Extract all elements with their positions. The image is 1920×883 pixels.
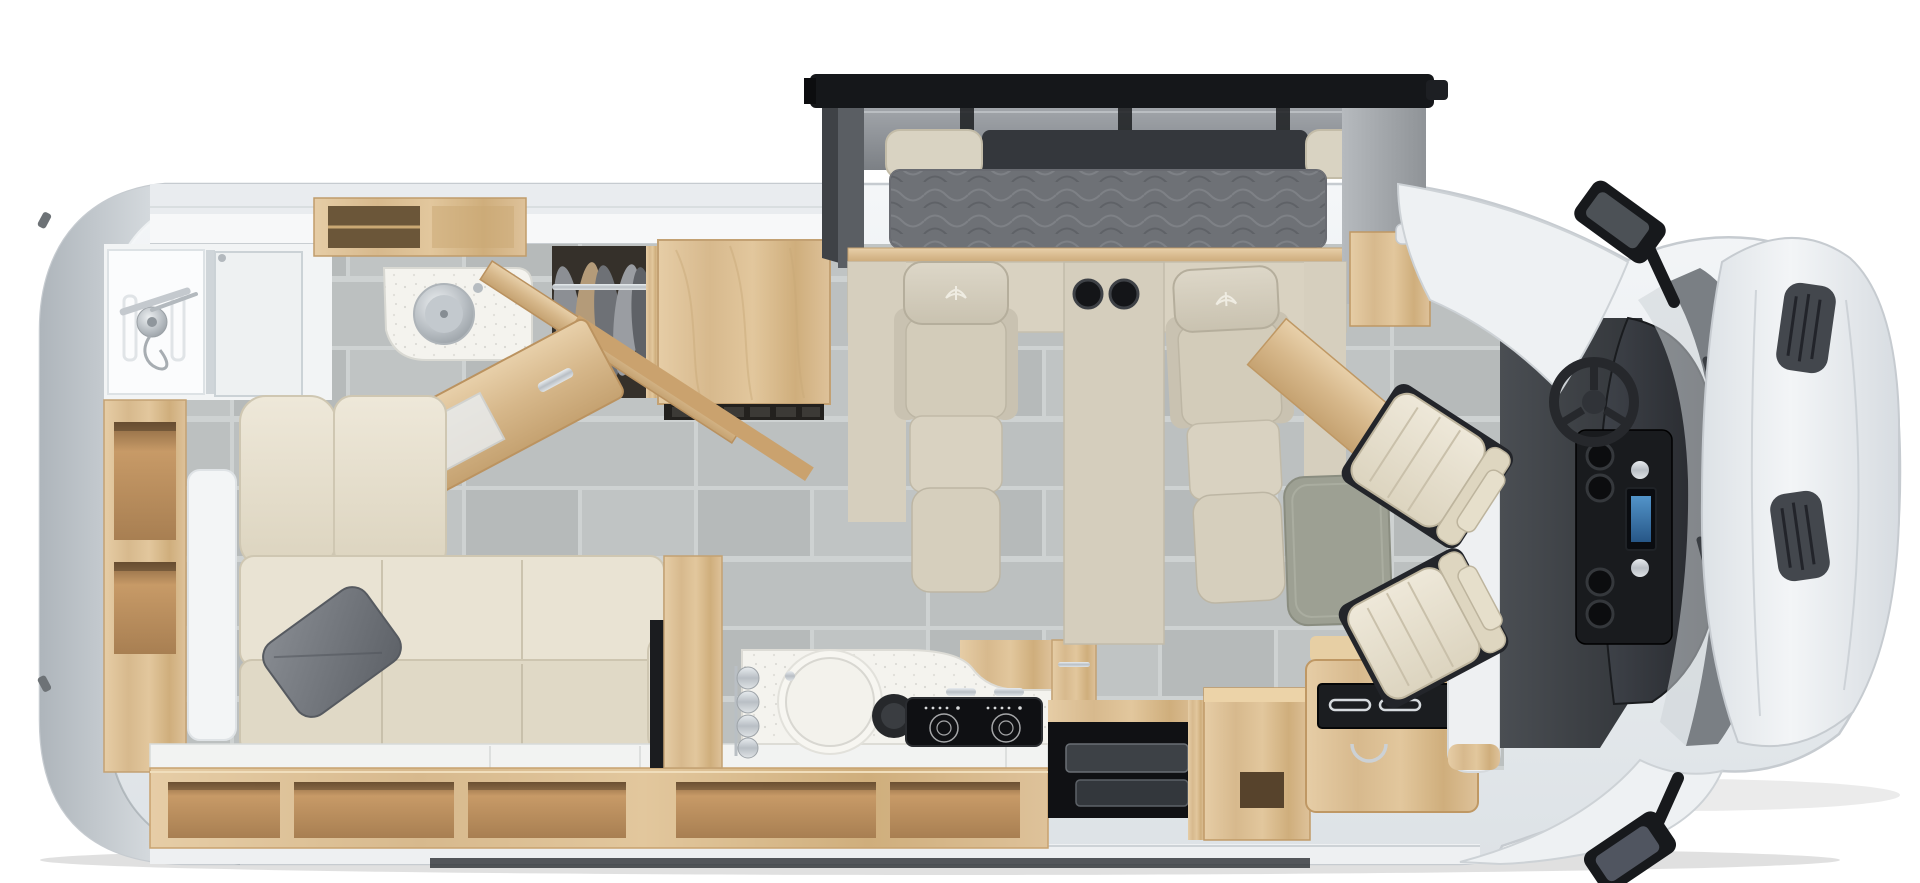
side-shelf-unit	[104, 400, 186, 772]
slideout-top-frame	[810, 74, 1434, 108]
partition-edge	[650, 620, 664, 768]
overhead-cabinet	[314, 198, 526, 256]
white-end-cabinet	[188, 470, 236, 740]
window-ledge	[150, 744, 1048, 770]
storage-cubbies	[150, 768, 1048, 848]
mattress	[890, 170, 1326, 248]
cab-center-console	[1576, 430, 1672, 644]
cupholder-console	[1064, 262, 1164, 644]
closet-rod	[552, 284, 656, 290]
hood	[1702, 238, 1899, 746]
entry-cabinet	[1204, 688, 1310, 840]
rv-floorplan-stage	[0, 0, 1920, 883]
recliner-left	[894, 262, 1018, 592]
bathroom-shower	[104, 244, 332, 400]
rv-floorplan-image	[0, 0, 1920, 883]
